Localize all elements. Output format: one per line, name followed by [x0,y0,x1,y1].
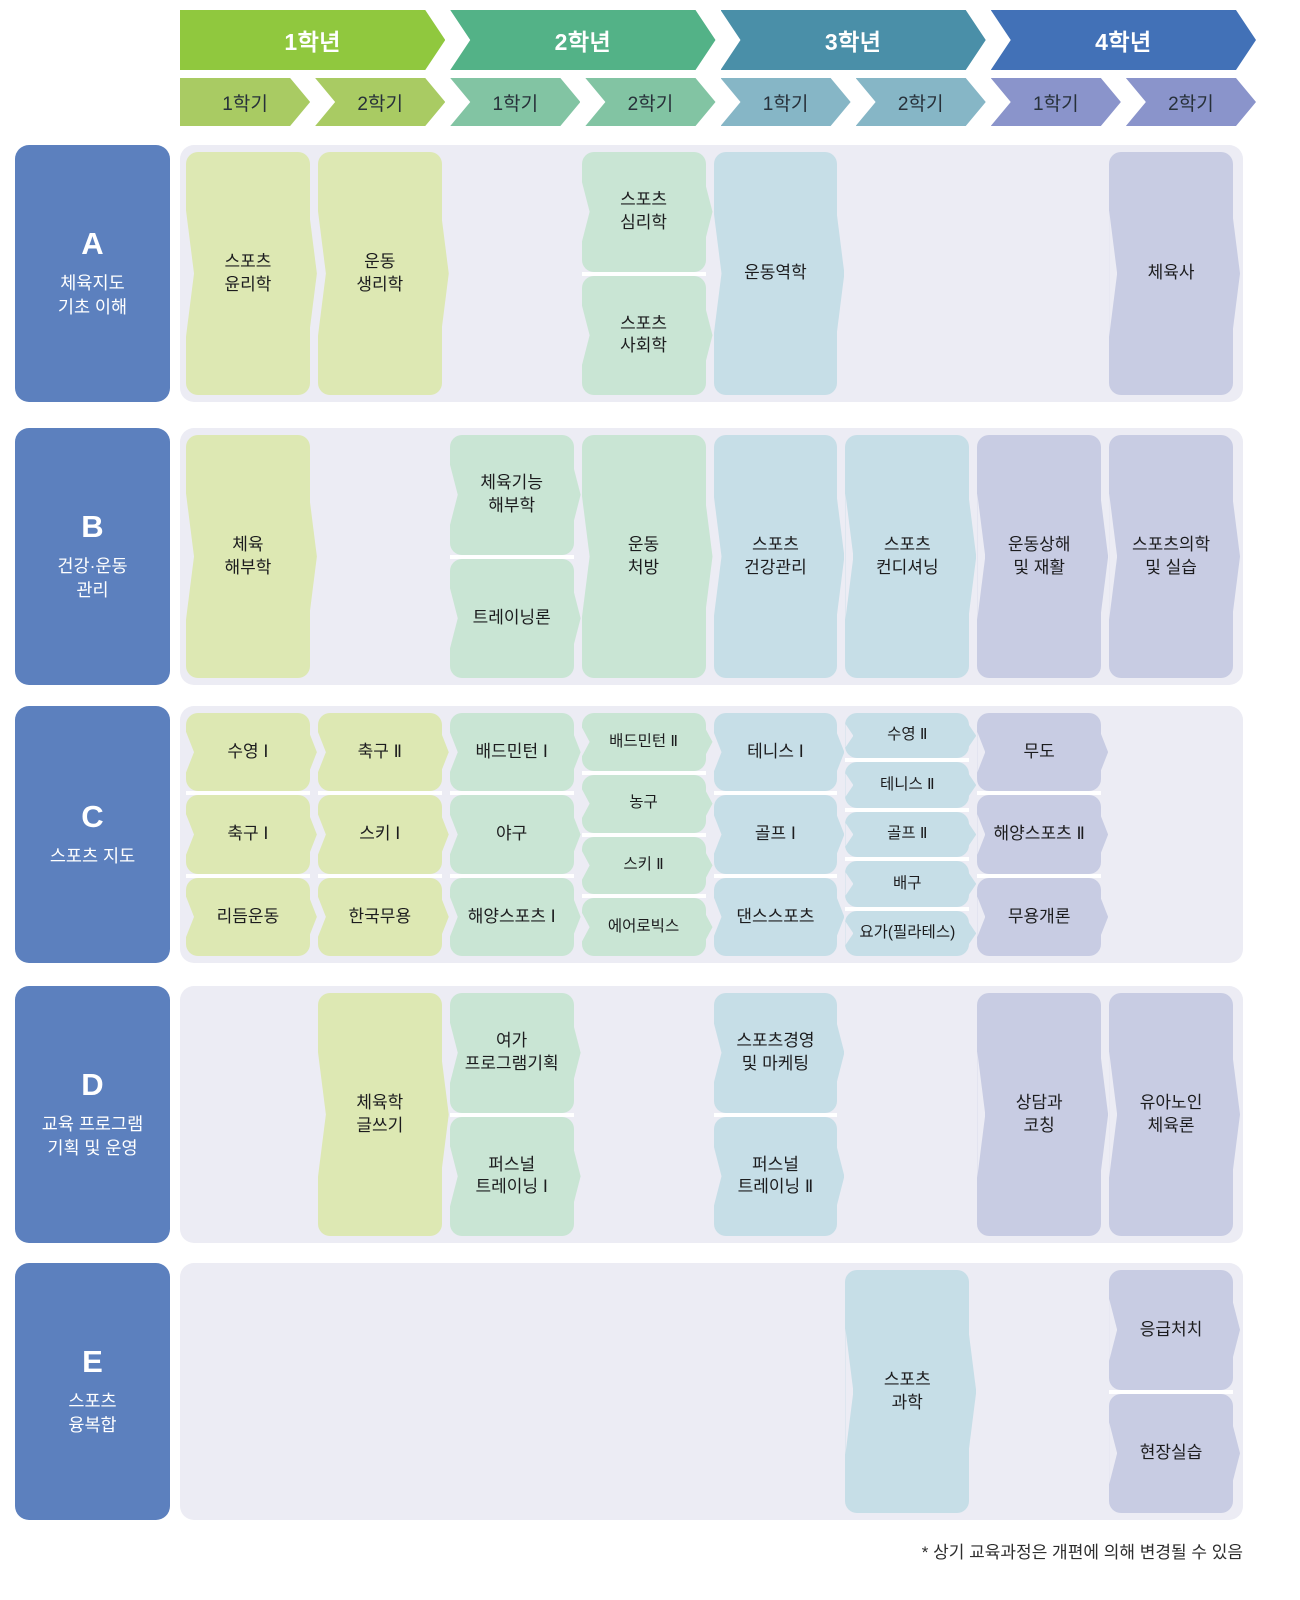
course-card-label: 유아노인 체육론 [1136,1092,1207,1137]
semester-arrow-year4-1학기: 1학기 [991,78,1121,126]
course-card-label: 해양스포츠 Ⅱ [990,823,1089,845]
semester-arrow-year1-2학기: 2학기 [315,78,445,126]
course-card: 스포츠의학 및 실습 [1109,435,1233,678]
cell-rowA-col1: 스포츠 윤리학 [186,152,310,395]
course-card-label: 배구 [889,874,926,894]
course-card: 상담과 코칭 [977,993,1101,1236]
course-card: 운동 처방 [582,435,706,678]
cell-rowC-col2: 축구 Ⅱ스키 Ⅰ한국무용 [318,713,442,956]
semester-arrow-year2-2학기: 2학기 [585,78,715,126]
cell-rowA-col5: 운동역학 [714,152,838,395]
course-card-label: 배드민턴 Ⅰ [472,741,552,763]
course-card: 한국무용 [318,878,442,956]
cell-rowA-col8: 체육사 [1109,152,1233,395]
course-card-label: 해양스포츠 Ⅰ [464,906,560,928]
course-card-label: 스키 Ⅱ [619,855,667,875]
course-card: 스포츠 과학 [845,1270,969,1513]
row-panel-E: 스포츠 과학응급처치현장실습 [180,1263,1243,1520]
semester-header: 1학기2학기1학기2학기1학기2학기1학기2학기 [180,78,1256,126]
cell-rowB-col4: 운동 처방 [582,435,706,678]
cell-rowD-col7: 상담과 코칭 [977,993,1101,1236]
course-card: 트레이닝론 [450,559,574,679]
course-card-label: 농구 [625,793,662,813]
course-card-label: 리듬운동 [213,906,284,928]
course-card-label: 스포츠 컨디셔닝 [872,534,943,579]
course-card: 해양스포츠 Ⅰ [450,878,574,956]
course-card-label: 퍼스널 트레이닝 Ⅰ [472,1154,552,1199]
semester-arrow-year1-1학기: 1학기 [180,78,310,126]
cell-rowB-col7: 운동상해 및 재활 [977,435,1101,678]
course-card-label: 스키 Ⅰ [355,823,404,845]
course-card: 스포츠 컨디셔닝 [845,435,969,678]
course-card-label: 여가 프로그램기획 [461,1030,563,1075]
course-card: 해양스포츠 Ⅱ [977,795,1101,873]
cell-rowD-col8: 유아노인 체육론 [1109,993,1233,1236]
cell-rowB-col6: 스포츠 컨디셔닝 [845,435,969,678]
course-card-label: 댄스스포츠 [732,906,818,928]
course-card-label: 운동역학 [740,262,811,284]
stack-divider [450,555,574,559]
stack-divider [450,1113,574,1117]
course-card-label: 응급처치 [1136,1319,1207,1341]
cell-rowC-col6: 수영 Ⅱ테니스 Ⅱ골프 Ⅱ배구요가(필라테스) [845,713,969,956]
course-card-label: 무용개론 [1004,906,1075,928]
cell-rowC-col7: 무도해양스포츠 Ⅱ무용개론 [977,713,1101,956]
course-card: 퍼스널 트레이닝 Ⅱ [714,1117,838,1237]
course-card-label: 축구 Ⅱ [354,741,406,763]
course-card-label: 스포츠경영 및 마케팅 [732,1030,818,1075]
course-card: 테니스 Ⅱ [845,762,969,807]
course-card: 축구 Ⅱ [318,713,442,791]
course-card: 요가(필라테스) [845,911,969,956]
row-label-B: B건강·운동 관리 [15,428,170,685]
row-letter: A [81,228,103,259]
course-card-label: 테니스 Ⅰ [743,741,808,763]
cell-rowB-col3: 체육기능 해부학트레이닝론 [450,435,574,678]
course-card: 에어로빅스 [582,898,706,956]
course-card: 배구 [845,861,969,906]
course-card-label: 수영 Ⅰ [223,741,272,763]
course-card-label: 스포츠 심리학 [616,189,671,234]
cell-rowC-col1: 수영 Ⅰ축구 Ⅰ리듬운동 [186,713,310,956]
semester-arrow-year2-1학기: 1학기 [450,78,580,126]
course-card: 스포츠 윤리학 [186,152,310,395]
cell-rowC-col3: 배드민턴 Ⅰ야구해양스포츠 Ⅰ [450,713,574,956]
semester-arrow-year3-1학기: 1학기 [721,78,851,126]
course-card-label: 스포츠 사회학 [616,313,671,358]
row-label-A: A체육지도 기초 이해 [15,145,170,402]
course-card: 스포츠경영 및 마케팅 [714,993,838,1113]
cell-rowA-col2: 운동 생리학 [318,152,442,395]
course-card: 골프 Ⅱ [845,812,969,857]
course-card: 스포츠 사회학 [582,276,706,396]
row-title: 스포츠 지도 [50,844,135,869]
course-card-label: 한국무용 [345,906,416,928]
course-card-label: 체육사 [1144,262,1199,284]
course-card: 스키 Ⅰ [318,795,442,873]
course-card: 응급처치 [1109,1270,1233,1390]
course-card-label: 축구 Ⅰ [223,823,272,845]
course-card: 축구 Ⅰ [186,795,310,873]
year-header: 1학년2학년3학년4학년 [180,10,1256,70]
course-card-label: 배드민턴 Ⅱ [605,732,682,752]
course-card-label: 체육학 글쓰기 [352,1092,407,1137]
course-card: 체육학 글쓰기 [318,993,442,1236]
row-label-C: C스포츠 지도 [15,706,170,963]
course-card: 스포츠 심리학 [582,152,706,272]
course-card: 리듬운동 [186,878,310,956]
cell-rowC-col4: 배드민턴 Ⅱ농구스키 Ⅱ에어로빅스 [582,713,706,956]
year-banner-3: 3학년 [721,10,986,70]
cell-rowD-col2: 체육학 글쓰기 [318,993,442,1236]
cell-rowE-col8: 응급처치현장실습 [1109,1270,1233,1513]
cell-rowA-col4: 스포츠 심리학스포츠 사회학 [582,152,706,395]
course-card: 무도 [977,713,1101,791]
course-card-label: 테니스 Ⅱ [876,775,939,795]
course-card-label: 현장실습 [1136,1442,1207,1464]
course-card-label: 골프 Ⅱ [883,824,931,844]
row-panel-D: 체육학 글쓰기여가 프로그램기획퍼스널 트레이닝 Ⅰ스포츠경영 및 마케팅퍼스널… [180,986,1243,1243]
row-letter: E [82,1346,103,1377]
curriculum-page: 1학년2학년3학년4학년 1학기2학기1학기2학기1학기2학기1학기2학기 A체… [0,0,1300,1600]
row-letter: B [81,511,103,542]
row-title: 체육지도 기초 이해 [58,271,127,320]
course-card: 무용개론 [977,878,1101,956]
course-card: 운동상해 및 재활 [977,435,1101,678]
course-card: 운동 생리학 [318,152,442,395]
cell-rowB-col1: 체육 해부학 [186,435,310,678]
row-panel-C: 수영 Ⅰ축구 Ⅰ리듬운동축구 Ⅱ스키 Ⅰ한국무용배드민턴 Ⅰ야구해양스포츠 Ⅰ배… [180,706,1243,963]
course-card: 체육기능 해부학 [450,435,574,555]
course-card-label: 체육기능 해부학 [476,472,547,517]
row-letter: C [81,801,103,832]
row-title: 건강·운동 관리 [57,554,127,603]
cell-rowB-col5: 스포츠 건강관리 [714,435,838,678]
semester-arrow-year3-2학기: 2학기 [856,78,986,126]
course-card-label: 스포츠 건강관리 [740,534,811,579]
course-card: 퍼스널 트레이닝 Ⅰ [450,1117,574,1237]
course-card-label: 스포츠의학 및 실습 [1128,534,1214,579]
stack-divider [1109,1390,1233,1394]
course-card: 체육사 [1109,152,1233,395]
course-card-label: 수영 Ⅱ [883,725,931,745]
stack-divider [582,272,706,276]
row-panel-B: 체육 해부학체육기능 해부학트레이닝론운동 처방스포츠 건강관리스포츠 컨디셔닝… [180,428,1243,685]
cell-rowC-col5: 테니스 Ⅰ골프 Ⅰ댄스스포츠 [714,713,838,956]
course-card: 현장실습 [1109,1394,1233,1514]
row-label-D: D교육 프로그램 기획 및 운영 [15,986,170,1243]
course-card: 수영 Ⅰ [186,713,310,791]
course-card-label: 골프 Ⅰ [751,823,800,845]
course-card: 배드민턴 Ⅱ [582,713,706,771]
cell-rowD-col3: 여가 프로그램기획퍼스널 트레이닝 Ⅰ [450,993,574,1236]
year-banner-2: 2학년 [450,10,715,70]
course-card: 농구 [582,775,706,833]
cell-rowD-col5: 스포츠경영 및 마케팅퍼스널 트레이닝 Ⅱ [714,993,838,1236]
footnote: * 상기 교육과정은 개편에 의해 변경될 수 있음 [180,1538,1243,1563]
course-card: 댄스스포츠 [714,878,838,956]
course-card: 스포츠 건강관리 [714,435,838,678]
course-card: 운동역학 [714,152,838,395]
course-card: 유아노인 체육론 [1109,993,1233,1236]
course-card-label: 운동 생리학 [352,251,407,296]
row-title: 스포츠 융복합 [68,1389,116,1438]
stack-divider [714,1113,838,1117]
course-card: 야구 [450,795,574,873]
course-card: 스키 Ⅱ [582,837,706,895]
course-card-label: 퍼스널 트레이닝 Ⅱ [734,1154,818,1199]
course-card-label: 스포츠 윤리학 [220,251,275,296]
course-card-label: 상담과 코칭 [1012,1092,1067,1137]
course-card-label: 스포츠 과학 [880,1369,935,1414]
course-card-label: 운동상해 및 재활 [1004,534,1075,579]
cell-rowB-col8: 스포츠의학 및 실습 [1109,435,1233,678]
row-panel-A: 스포츠 윤리학운동 생리학스포츠 심리학스포츠 사회학운동역학체육사 [180,145,1243,402]
course-card-label: 요가(필라테스) [855,923,959,943]
year-banner-1: 1학년 [180,10,445,70]
course-card: 수영 Ⅱ [845,713,969,758]
course-card-label: 무도 [1020,741,1059,763]
stack-divider [582,833,706,837]
cell-rowE-col6: 스포츠 과학 [845,1270,969,1513]
course-card-label: 운동 처방 [624,534,663,579]
year-banner-4: 4학년 [991,10,1256,70]
row-letter: D [81,1069,103,1100]
semester-arrow-year4-2학기: 2학기 [1126,78,1256,126]
course-card-label: 체육 해부학 [220,534,275,579]
course-card: 골프 Ⅰ [714,795,838,873]
course-card: 여가 프로그램기획 [450,993,574,1113]
course-card-label: 에어로빅스 [604,917,683,937]
course-card-label: 야구 [492,823,531,845]
course-card: 테니스 Ⅰ [714,713,838,791]
course-card-label: 트레이닝론 [469,607,555,629]
row-title: 교육 프로그램 기획 및 운영 [42,1112,143,1161]
row-label-E: E스포츠 융복합 [15,1263,170,1520]
course-card: 배드민턴 Ⅰ [450,713,574,791]
course-card: 체육 해부학 [186,435,310,678]
